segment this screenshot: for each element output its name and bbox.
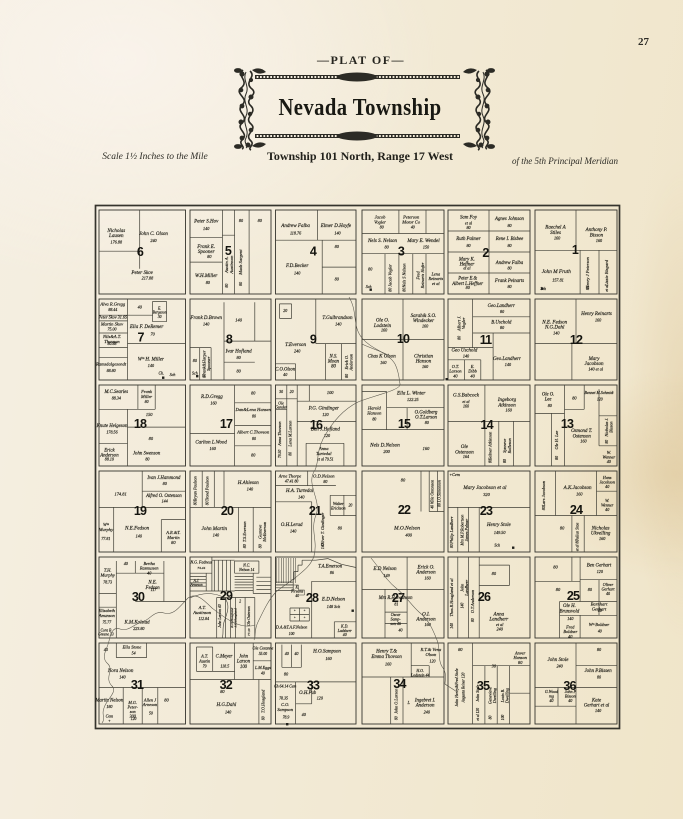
svg-text:80: 80 xyxy=(224,284,229,288)
svg-text:140: 140 xyxy=(290,529,297,534)
svg-text:80: 80 xyxy=(194,501,198,505)
svg-text:160: 160 xyxy=(210,446,217,451)
svg-text:160: 160 xyxy=(424,576,431,581)
svg-text:80: 80 xyxy=(471,618,475,622)
svg-text:80: 80 xyxy=(598,608,602,613)
svg-text:80: 80 xyxy=(489,459,493,463)
svg-text:Ole Ontonson: Ole Ontonson xyxy=(429,480,434,503)
svg-text:140 et al: 140 et al xyxy=(588,366,604,371)
svg-text:GustaveMcEnerson: GustaveMcEnerson xyxy=(257,522,267,543)
svg-text:80: 80 xyxy=(503,459,507,463)
svg-text:100: 100 xyxy=(289,632,295,636)
svg-text:40: 40 xyxy=(124,561,129,566)
svg-text:80: 80 xyxy=(560,525,565,530)
svg-text:80: 80 xyxy=(457,336,461,340)
svg-text:74.44: 74.44 xyxy=(197,566,205,570)
svg-text:Philip Landherr: Philip Landherr xyxy=(449,516,454,545)
svg-text:Henry Reinarts: Henry Reinarts xyxy=(580,312,612,317)
svg-text:117: 117 xyxy=(151,587,158,592)
svg-text:80: 80 xyxy=(238,282,243,286)
svg-text:80: 80 xyxy=(164,697,169,702)
svg-text:et al 79.51: et al 79.51 xyxy=(317,457,333,461)
svg-text:100: 100 xyxy=(327,390,334,395)
svg-text:160: 160 xyxy=(422,364,429,369)
svg-text:16: 16 xyxy=(310,418,323,432)
svg-text:Louis B.Dwelling: Louis B.Dwelling xyxy=(500,688,509,704)
svg-text:Ramsdalgesondt: Ramsdalgesondt xyxy=(95,361,127,366)
svg-text:20: 20 xyxy=(283,308,287,313)
svg-text:144: 144 xyxy=(162,499,168,504)
svg-text:88.34: 88.34 xyxy=(112,396,121,401)
svg-text:80: 80 xyxy=(145,456,149,461)
svg-text:217.88: 217.88 xyxy=(142,276,154,281)
svg-text:47.41 80: 47.41 80 xyxy=(285,479,299,483)
svg-text:240: 240 xyxy=(424,710,431,715)
svg-text:Ruth Palmer: Ruth Palmer xyxy=(455,237,481,242)
svg-text:T.O.Hoagland: T.O.Hoagland xyxy=(261,689,266,713)
svg-text:80: 80 xyxy=(555,456,559,460)
svg-text:Peter S.Hov: Peter S.Hov xyxy=(193,220,219,225)
svg-text:E.Dibb40: E.Dibb40 xyxy=(467,364,477,378)
svg-text:C.Meyer: C.Meyer xyxy=(216,655,233,660)
svg-text:Ch.: Ch. xyxy=(158,370,164,375)
svg-text:M.O.Nelson: M.O.Nelson xyxy=(393,525,420,531)
svg-text:70: 70 xyxy=(150,331,155,336)
svg-text:Mary Jacobson et al: Mary Jacobson et al xyxy=(462,485,507,491)
svg-text:40: 40 xyxy=(294,651,298,656)
svg-text:80: 80 xyxy=(572,396,577,401)
svg-text:80: 80 xyxy=(251,452,256,457)
svg-text:Agnes Johnson: Agnes Johnson xyxy=(494,217,525,222)
svg-text:Ingebret I.Anderson: Ingebret I.Anderson xyxy=(414,698,436,708)
svg-text:36: 36 xyxy=(563,679,576,693)
svg-text:27: 27 xyxy=(392,591,405,605)
svg-text:80: 80 xyxy=(239,218,244,223)
svg-text:140: 140 xyxy=(225,710,232,715)
svg-text:140: 140 xyxy=(463,353,470,358)
svg-text:223.80: 223.80 xyxy=(133,626,144,631)
svg-text:1: 1 xyxy=(572,243,579,257)
svg-text:80: 80 xyxy=(193,358,198,363)
svg-text:H.O.Sampson: H.O.Sampson xyxy=(312,650,341,655)
svg-text:40: 40 xyxy=(302,712,307,717)
svg-text:88.44: 88.44 xyxy=(108,307,117,312)
svg-text:20: 20 xyxy=(290,390,294,394)
svg-text:2: 2 xyxy=(482,246,489,260)
svg-text:160: 160 xyxy=(506,408,513,413)
svg-text:3: 3 xyxy=(398,245,405,259)
svg-text:23: 23 xyxy=(480,504,493,518)
svg-text:A.T.Austinson: A.T.Austinson xyxy=(192,605,212,615)
svg-text:22: 22 xyxy=(398,503,411,517)
svg-text:80: 80 xyxy=(489,716,493,720)
svg-text:et al: et al xyxy=(604,284,609,292)
svg-text:A.J.Arneson: A.J.Arneson xyxy=(189,579,202,587)
svg-text:Nels S Nelson: Nels S Nelson xyxy=(402,263,407,288)
svg-text:160: 160 xyxy=(380,360,387,365)
svg-text:88.80: 88.80 xyxy=(107,368,116,373)
svg-text:178.56: 178.56 xyxy=(106,430,118,435)
svg-text:AnverHanson80: AnverHanson80 xyxy=(512,650,526,664)
svg-text:164: 164 xyxy=(463,454,469,459)
svg-text:N.G. Fadness: N.G. Fadness xyxy=(189,560,212,565)
svg-text:Lizzie Bisgard: Lizzie Bisgard xyxy=(604,259,609,287)
svg-text:W.H.Miller: W.H.Miller xyxy=(195,274,217,279)
svg-text:Allen JArneson: Allen JArneson xyxy=(142,697,157,707)
svg-text:80: 80 xyxy=(236,369,241,374)
svg-text:140: 140 xyxy=(203,226,210,231)
svg-text:240: 240 xyxy=(556,663,563,668)
svg-text:100: 100 xyxy=(501,715,505,721)
svg-text:H.Ahleson: H.Ahleson xyxy=(237,481,260,486)
svg-text:Selmer Atkinson: Selmer Atkinson xyxy=(488,432,493,460)
svg-text:T.A.Emerson: T.A.Emerson xyxy=(318,565,343,570)
svg-text:40: 40 xyxy=(411,226,415,230)
svg-text:Peter Skov 31.65: Peter Skov 31.65 xyxy=(97,314,127,319)
svg-text:OliverGerhart40: OliverGerhart40 xyxy=(601,582,615,596)
svg-text:N.S.Moan80: N.S.Moan80 xyxy=(327,354,340,369)
svg-text:ElisabethAmunson: ElisabethAmunson xyxy=(98,608,115,618)
svg-text:140: 140 xyxy=(119,675,126,680)
svg-text:Frank D.Brown: Frank D.Brown xyxy=(189,316,222,321)
svg-text:140: 140 xyxy=(213,533,220,538)
svg-text:Sch: Sch xyxy=(170,372,176,377)
svg-text:9: 9 xyxy=(310,333,317,347)
svg-text:Erick O.Anderson: Erick O.Anderson xyxy=(344,354,354,372)
svg-text:FredReinarts Hofer: FredReinarts Hofer xyxy=(415,262,425,289)
svg-text:Arne Thorpe: Arne Thorpe xyxy=(278,474,302,479)
svg-text:176.88: 176.88 xyxy=(111,240,123,245)
svg-text:160: 160 xyxy=(580,439,587,444)
svg-text:79.50: 79.50 xyxy=(278,450,282,459)
svg-text:+Cem: +Cem xyxy=(449,472,460,477)
svg-text:W.Wenner40: W.Wenner40 xyxy=(601,498,614,512)
svg-text:80: 80 xyxy=(548,403,552,408)
svg-text:Erick O.Anderson: Erick O.Anderson xyxy=(415,565,436,575)
svg-text:28: 28 xyxy=(306,591,319,605)
svg-text:K.Firsams40: K.Firsams40 xyxy=(290,586,304,598)
svg-text:et al160: et al160 xyxy=(462,399,470,408)
svg-text:JacobVogler: JacobVogler xyxy=(374,214,386,224)
svg-text:Lars Jacobson: Lars Jacobson xyxy=(541,481,546,507)
svg-text:2: 2 xyxy=(239,599,241,603)
svg-text:240: 240 xyxy=(294,349,301,354)
svg-text:78.73: 78.73 xyxy=(103,580,112,585)
svg-text:80: 80 xyxy=(251,391,256,396)
svg-text:80: 80 xyxy=(252,413,256,418)
svg-text:K.O.HoaglandJ.O.Hoagland: K.O.HoaglandJ.O.Hoagland xyxy=(230,608,238,629)
svg-text:Knute Helgeson: Knute Helgeson xyxy=(96,424,128,429)
svg-text:Chas K Olson: Chas K Olson xyxy=(368,354,397,359)
svg-text:8: 8 xyxy=(226,333,233,347)
svg-text:148 Sch: 148 Sch xyxy=(327,604,340,609)
svg-text:Bryan Paulson: Bryan Paulson xyxy=(193,476,198,501)
svg-text:77.81: 77.81 xyxy=(101,536,110,541)
svg-text:160: 160 xyxy=(210,400,217,405)
svg-text:Dan&Lena Hansen: Dan&Lena Hansen xyxy=(234,407,271,412)
svg-text:O.T.Larson40: O.T.Larson40 xyxy=(448,364,461,378)
svg-text:N.C.Nelson 14: N.C.Nelson 14 xyxy=(238,564,254,572)
svg-text:140: 140 xyxy=(595,708,602,713)
svg-text:160: 160 xyxy=(599,536,606,541)
svg-text:80: 80 xyxy=(588,587,593,592)
svg-text:E.D.Nelson: E.D.Nelson xyxy=(321,598,346,603)
svg-text:H.G.Dahl: H.G.Dahl xyxy=(216,703,237,708)
svg-text:149.50: 149.50 xyxy=(494,530,506,535)
svg-text:Ella L. Winter: Ella L. Winter xyxy=(396,392,425,397)
svg-text:Julius Stae: Julius Stae xyxy=(575,523,580,541)
svg-text:P.G. Gindinger: P.G. Gindinger xyxy=(308,406,339,411)
svg-text:13: 13 xyxy=(561,417,574,431)
svg-text:160: 160 xyxy=(554,235,561,240)
svg-text:80: 80 xyxy=(507,266,511,271)
svg-text:80: 80 xyxy=(258,544,262,548)
svg-text:80: 80 xyxy=(258,218,263,223)
svg-text:Ch 64.14 Cem: Ch 64.14 Cem xyxy=(274,685,296,689)
svg-text:160: 160 xyxy=(385,662,392,667)
svg-text:140: 140 xyxy=(247,486,254,491)
svg-text:26: 26 xyxy=(478,590,491,604)
svg-text:14: 14 xyxy=(480,418,493,432)
svg-text:80: 80 xyxy=(394,716,398,720)
svg-text:54: 54 xyxy=(132,650,136,655)
svg-text:Lena M.Larson: Lena M.Larson xyxy=(288,421,293,448)
svg-text:John P.Bissen: John P.Bissen xyxy=(585,669,613,674)
svg-text:140: 140 xyxy=(553,331,560,336)
svg-text:174.81: 174.81 xyxy=(114,491,126,496)
svg-text:31: 31 xyxy=(131,678,144,692)
svg-text:W.Wenner40: W.Wenner40 xyxy=(602,450,615,464)
svg-text:F.D.Becker: F.D.Becker xyxy=(285,264,309,269)
svg-text:H.O.Lodstein 44: H.O.Lodstein 44 xyxy=(410,668,430,677)
svg-text:160: 160 xyxy=(423,446,430,451)
svg-text:40: 40 xyxy=(104,647,109,652)
svg-text:80: 80 xyxy=(438,503,442,507)
svg-text:Elmer D.Hoyfe: Elmer D.Hoyfe xyxy=(320,224,352,229)
svg-text:L: L xyxy=(407,700,411,705)
svg-text:80: 80 xyxy=(262,716,266,720)
svg-text:et al: et al xyxy=(463,266,471,271)
svg-text:Henry J Peterson: Henry J Peterson xyxy=(585,256,590,290)
svg-text:120: 120 xyxy=(322,412,329,417)
svg-text:40: 40 xyxy=(261,672,265,676)
svg-text:80: 80 xyxy=(585,286,590,290)
svg-text:Geo.Landherr: Geo.Landherr xyxy=(493,357,521,362)
svg-text:120: 120 xyxy=(317,696,323,701)
svg-text:140: 140 xyxy=(235,318,242,323)
svg-text:SynneveRolleson: SynneveRolleson xyxy=(502,438,512,454)
svg-text:80: 80 xyxy=(556,587,561,592)
svg-text:Nora Nelson: Nora Nelson xyxy=(107,669,134,674)
svg-text:+: + xyxy=(294,616,297,620)
svg-text:80: 80 xyxy=(335,244,340,249)
svg-text:80: 80 xyxy=(145,400,149,404)
svg-text:80: 80 xyxy=(507,284,511,289)
svg-text:80: 80 xyxy=(466,285,470,290)
svg-text:20: 20 xyxy=(221,504,234,518)
svg-text:80: 80 xyxy=(403,288,407,292)
svg-text:160: 160 xyxy=(595,318,602,323)
svg-text:40: 40 xyxy=(399,628,403,633)
svg-text:+: + xyxy=(303,616,306,620)
svg-text:30: 30 xyxy=(279,390,283,394)
svg-text:Anna Thovson: Anna Thovson xyxy=(277,422,282,447)
svg-text:150: 150 xyxy=(146,412,153,417)
svg-text:80: 80 xyxy=(401,478,406,483)
svg-text:Ole O.Lee: Ole O.Lee xyxy=(542,393,554,403)
svg-text:Wᵐ H. Miller: Wᵐ H. Miller xyxy=(138,358,164,363)
svg-text:A.K.Jacobson: A.K.Jacobson xyxy=(563,486,592,491)
svg-text:240: 240 xyxy=(150,238,157,243)
svg-text:160: 160 xyxy=(596,238,603,243)
svg-text:80: 80 xyxy=(450,544,454,548)
svg-text:John Stole: John Stole xyxy=(547,658,569,663)
svg-text:M.C.Searles: M.C.Searles xyxy=(103,390,128,395)
svg-text:+: + xyxy=(294,608,297,612)
svg-text:80: 80 xyxy=(380,226,384,230)
svg-text:80: 80 xyxy=(384,245,389,250)
svg-text:80: 80 xyxy=(597,675,601,680)
svg-text:H.A. Turtedal: H.A. Turtedal xyxy=(285,489,314,494)
svg-text:et al80: et al80 xyxy=(465,220,473,229)
svg-text:17: 17 xyxy=(220,417,233,431)
svg-text:140: 140 xyxy=(298,495,305,500)
svg-text:Cem+: Cem+ xyxy=(106,714,114,723)
svg-text:80: 80 xyxy=(206,280,211,285)
svg-text:33: 33 xyxy=(307,679,320,693)
svg-text:FrankMiller: FrankMiller xyxy=(140,389,153,399)
svg-text:80: 80 xyxy=(345,374,349,378)
svg-text:John Larson 40: John Larson 40 xyxy=(218,604,222,628)
svg-text:Nels S. Nelson: Nels S. Nelson xyxy=(367,239,398,244)
svg-text:140: 140 xyxy=(450,623,454,629)
svg-text:80: 80 xyxy=(605,440,609,444)
svg-text:80: 80 xyxy=(252,436,256,441)
svg-text:T.Gulbrandson: T.Gulbrandson xyxy=(322,316,353,321)
svg-text:A.T.Austin: A.T.Austin xyxy=(198,654,210,664)
svg-text:Henry Stole: Henry Stole xyxy=(486,523,512,528)
svg-text:88.10: 88.10 xyxy=(105,456,114,461)
svg-text:4: 4 xyxy=(310,245,317,259)
svg-text:LenaReinartset al: LenaReinartset al xyxy=(427,272,443,286)
svg-text:OleGunder: OleGunder xyxy=(275,401,287,409)
svg-text:80: 80 xyxy=(289,452,293,456)
svg-text:40: 40 xyxy=(598,629,602,633)
svg-text:Mrs M.P.RobertsonJames Palmer: Mrs M.P.RobertsonJames Palmer xyxy=(460,515,469,547)
svg-text:77.10: 77.10 xyxy=(247,628,251,636)
svg-text:Ella Stone: Ella Stone xyxy=(121,645,141,650)
svg-text:Sch: Sch xyxy=(366,284,372,289)
svg-text:20: 20 xyxy=(348,504,352,508)
svg-text:NicholasLausen: NicholasLausen xyxy=(106,229,125,239)
svg-text:140: 140 xyxy=(136,533,143,538)
svg-text:80: 80 xyxy=(389,288,393,292)
svg-text:19: 19 xyxy=(134,504,147,518)
svg-text:FredBoldner40: FredBoldner40 xyxy=(563,624,577,638)
svg-text:Ole H.Brunsvold: Ole H.Brunsvold xyxy=(560,604,580,614)
svg-text:40: 40 xyxy=(138,305,143,310)
svg-text:OscarSamp-son 46: OscarSamp-son 46 xyxy=(390,612,401,626)
svg-text:Anthony P.Bisson: Anthony P.Bisson xyxy=(585,228,608,238)
svg-text:Ole Osterson: Ole Osterson xyxy=(247,606,251,626)
svg-text:80: 80 xyxy=(597,647,602,652)
svg-text:120: 120 xyxy=(430,658,436,663)
svg-text:Ella F. DeRemer: Ella F. DeRemer xyxy=(129,325,164,330)
svg-text:WalterErickson: WalterErickson xyxy=(330,501,346,510)
svg-text:34: 34 xyxy=(393,677,406,691)
svg-text:Ole H. Lee: Ole H. Lee xyxy=(554,431,559,450)
svg-text:150: 150 xyxy=(423,245,430,250)
svg-text:R.D.Gregg: R.D.Gregg xyxy=(200,395,223,400)
svg-text:PetersonMotor Co: PetersonMotor Co xyxy=(401,214,421,224)
svg-text:John Henry&Fred Stole: John Henry&Fred Stole xyxy=(454,668,459,706)
svg-text:140: 140 xyxy=(567,616,573,621)
svg-text:Trond Paulson: Trond Paulson xyxy=(205,476,210,501)
svg-text:M.G.Peter-son300: M.G.Peter-son300 xyxy=(126,700,138,719)
svg-text:C.O.Sampson: C.O.Sampson xyxy=(277,702,293,712)
svg-text:140: 140 xyxy=(148,363,155,368)
svg-text:140: 140 xyxy=(334,230,341,235)
svg-text:32: 32 xyxy=(220,678,233,692)
svg-text:40: 40 xyxy=(285,651,289,656)
svg-text:86: 86 xyxy=(330,570,334,575)
svg-text:140: 140 xyxy=(505,362,512,367)
svg-text:Ben Gerhart: Ben Gerhart xyxy=(587,564,612,569)
svg-text:50: 50 xyxy=(149,711,153,715)
svg-text:112.84: 112.84 xyxy=(198,616,209,621)
svg-text:80: 80 xyxy=(372,417,376,422)
svg-text:40: 40 xyxy=(283,372,287,377)
svg-text:N.E. FedsonN.G.Dahl: N.E. FedsonN.G.Dahl xyxy=(541,320,567,330)
svg-text:200: 200 xyxy=(383,449,390,454)
svg-text:120: 120 xyxy=(131,717,137,721)
svg-text:80: 80 xyxy=(542,506,546,510)
svg-text:30: 30 xyxy=(132,590,145,604)
svg-text:140: 140 xyxy=(294,271,301,276)
svg-text:O.T.Anderson: O.T.Anderson xyxy=(470,590,475,613)
svg-text:Thos.R.Hougland et al: Thos.R.Hougland et al xyxy=(449,578,454,617)
svg-text:78.9: 78.9 xyxy=(283,715,290,719)
svg-text:Augusta Reiner 120: Augusta Reiner 120 xyxy=(461,673,465,704)
svg-text:O.H.Lerud: O.H.Lerud xyxy=(281,523,303,528)
svg-text:320: 320 xyxy=(483,492,490,497)
svg-text:Albert C.Thovson: Albert C.Thovson xyxy=(236,430,270,435)
svg-text:120: 120 xyxy=(597,397,603,401)
svg-text:JohnLarson100: JohnLarson100 xyxy=(236,655,251,670)
svg-text:140: 140 xyxy=(203,322,210,327)
svg-text:Albert J.Vogler: Albert J.Vogler xyxy=(456,316,466,332)
svg-text:25: 25 xyxy=(567,589,580,603)
svg-text:80: 80 xyxy=(323,479,327,484)
svg-text:Alva R.Gregg: Alva R.Gregg xyxy=(99,302,126,307)
svg-text:118.5: 118.5 xyxy=(220,663,229,668)
svg-text:Nels D.Nelson: Nels D.Nelson xyxy=(369,443,400,449)
svg-text:157.81: 157.81 xyxy=(552,277,564,282)
svg-text:120: 120 xyxy=(597,569,603,574)
svg-text:80: 80 xyxy=(458,647,463,652)
svg-text:Sch: Sch xyxy=(494,542,500,547)
svg-text:80: 80 xyxy=(500,309,504,314)
svg-text:80: 80 xyxy=(206,501,210,505)
svg-text:40 ½: 40 ½ xyxy=(430,501,434,509)
svg-text:Nicholas J.Bisson: Nicholas J.Bisson xyxy=(604,418,614,438)
svg-text:Henry T.&Emma Thovson: Henry T.&Emma Thovson xyxy=(370,650,402,660)
svg-text:Rene I. Bisbee: Rene I. Bisbee xyxy=(495,237,524,242)
svg-text:HaroldHanson: HaroldHanson xyxy=(366,405,382,415)
svg-text:John M Fruth: John M Fruth xyxy=(542,269,572,275)
svg-text:80: 80 xyxy=(338,525,343,530)
svg-text:L.M.Eggs: L.M.Eggs xyxy=(254,665,271,670)
